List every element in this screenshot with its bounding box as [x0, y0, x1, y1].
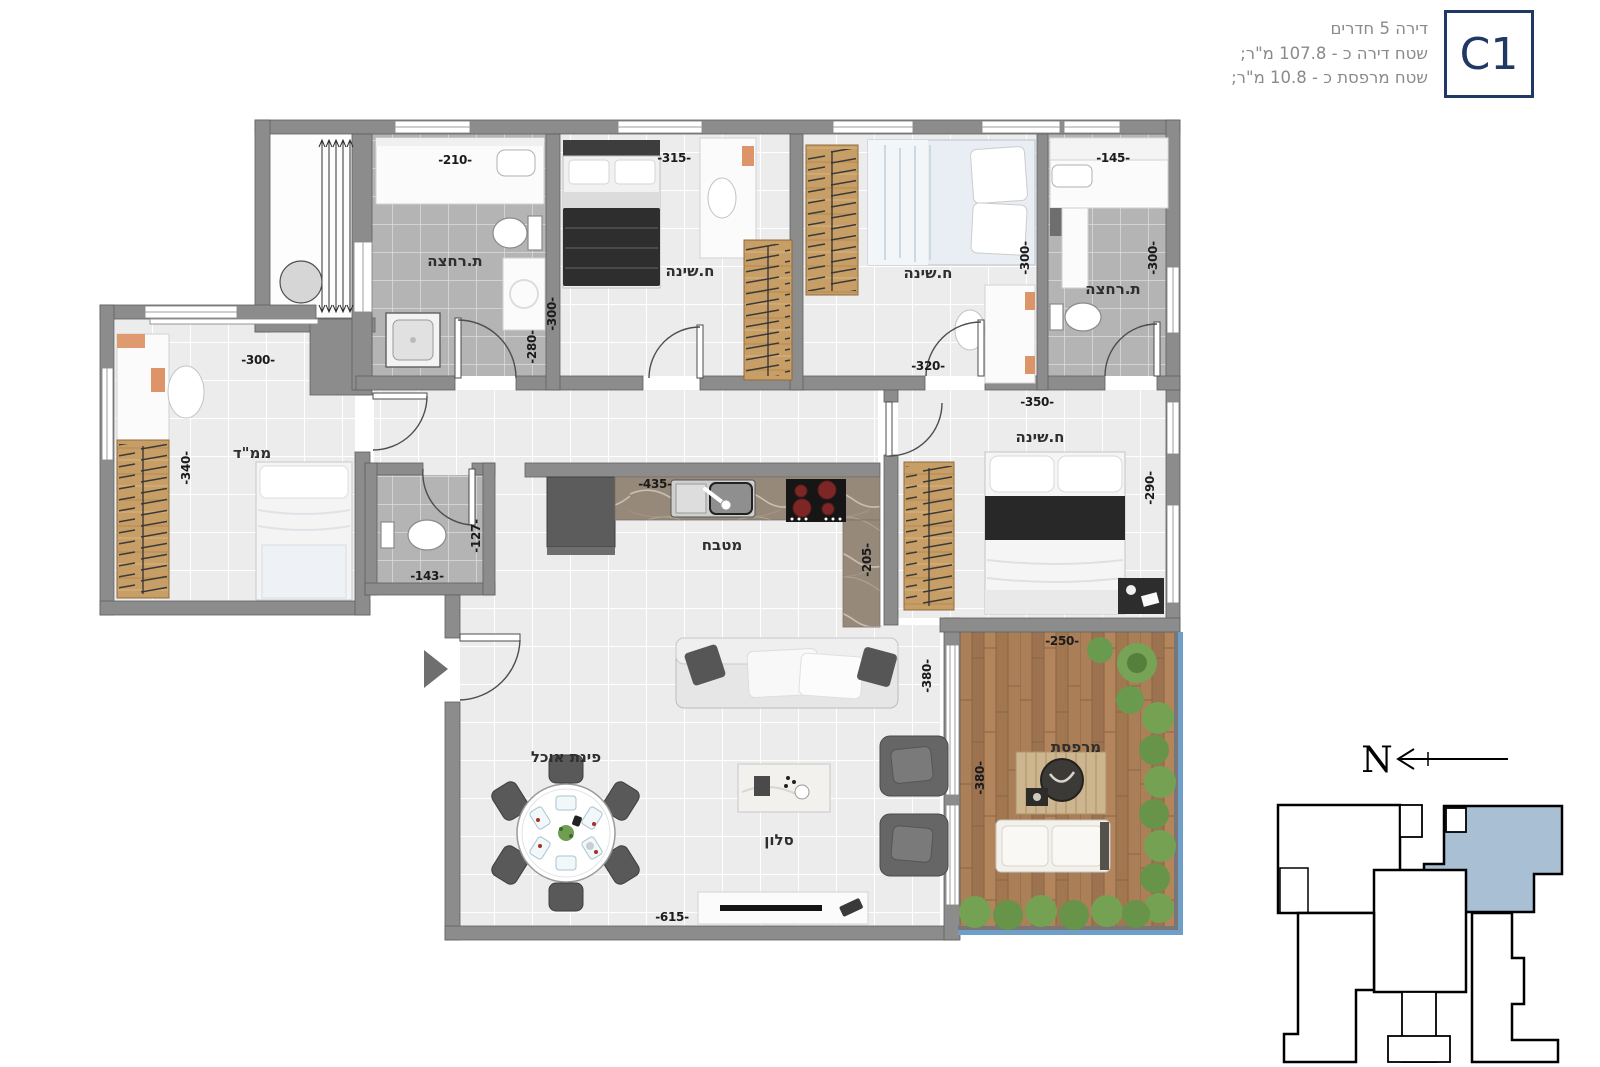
dim-safe-room-height: -340- [179, 451, 193, 485]
dim-safe-room-width: -300- [241, 353, 275, 367]
dim-bedroom-1-width: -315- [657, 151, 691, 165]
dim-bedroom-1-height: -300- [545, 297, 559, 331]
dim-bedroom-2-height: -300- [1018, 241, 1032, 275]
pillow [260, 466, 348, 498]
unit-code-badge: C1 [1444, 10, 1534, 98]
plan-header: דירה 5 חדרים שטח דירה כ - 107.8 מ"ר; שטח… [1231, 10, 1534, 98]
dim-wc-height: -127- [469, 519, 483, 553]
wc [381, 520, 446, 550]
north-arrow: N [1361, 740, 1508, 781]
lounge-sofa [996, 820, 1110, 872]
wardrobe-icon [744, 240, 792, 380]
blanket [262, 545, 346, 598]
key-plan [1278, 805, 1562, 1062]
room-label-living: סלון [764, 831, 794, 849]
dim-kitchen-width: -435- [638, 477, 672, 491]
tv-icon [720, 905, 822, 911]
dim-balcony-width: -250- [1045, 634, 1079, 648]
apartment-area-label: שטח דירה כ - 107.8 מ"ר; [1231, 42, 1428, 67]
bed-headboard [563, 140, 660, 156]
room-label-master: ח.שינה [1016, 428, 1065, 446]
fridge-icon [547, 477, 615, 547]
toilet-icon [1065, 303, 1101, 331]
dim-wc-width: -143- [410, 569, 444, 583]
apartment-info: דירה 5 חדרים שטח דירה כ - 107.8 מ"ר; שטח… [1231, 17, 1428, 91]
armchair [880, 814, 948, 876]
dim-bathroom-1-width: -210- [438, 153, 472, 167]
coffee-table [738, 764, 830, 812]
pillow [990, 456, 1054, 492]
room-label-dining: פינת אוכל [531, 748, 601, 766]
room-label-bedroom-1: ח.שינה [666, 262, 715, 280]
sofa [676, 638, 898, 708]
outdoor-rug [1016, 752, 1106, 814]
balcony-area-label: שטח מרפסת כ - 10.8 מ"ר; [1231, 66, 1428, 91]
room-label-safe-room: ממ"ד [233, 444, 271, 462]
unit-code: C1 [1460, 29, 1519, 80]
wardrobe-icon [117, 440, 169, 598]
dim-master-width: -350- [1020, 395, 1054, 409]
master-bedroom [904, 452, 1164, 614]
blanket [985, 496, 1125, 540]
room-label-bathroom-1: ת.רחצה [427, 252, 482, 270]
pillow [615, 160, 655, 184]
apartment-type-label: דירה 5 חדרים [1231, 17, 1428, 42]
dim-balcony-height: -380- [973, 761, 987, 795]
toilet-icon [408, 520, 446, 550]
room-label-bedroom-2: ח.שינה [904, 264, 953, 282]
sink-icon [671, 480, 755, 517]
tv-console [698, 892, 868, 924]
dim-bathroom-2-width: -145- [1096, 151, 1130, 165]
armchair [880, 736, 948, 796]
dim-bathroom-2-height: -300- [1146, 241, 1160, 275]
dim-bathroom-1-height: -280- [525, 330, 539, 364]
stove-icon [786, 479, 846, 522]
balcony-railing-blue [1178, 632, 1183, 935]
pillow [1058, 456, 1122, 492]
dim-kitchen-height: -205- [860, 543, 874, 577]
sink-basin [497, 150, 535, 176]
dim-master-height: -290- [1143, 471, 1157, 505]
basin [168, 366, 204, 418]
wardrobe-icon [806, 145, 858, 295]
sink-basin [1052, 165, 1092, 187]
floor-plan-page: ת.רחצה -210- -280- ח.שינה -315- -300- ח.… [0, 0, 1600, 1067]
dim-living-height: -380- [920, 659, 934, 693]
north-letter: N [1361, 740, 1393, 781]
room-label-bathroom-2: ת.רחצה [1085, 280, 1140, 298]
entrance-arrow-icon [424, 650, 448, 688]
dim-bedroom-2-width: -320- [911, 359, 945, 373]
pillow [569, 160, 609, 184]
balcony-railing-blue-bottom [958, 930, 1183, 935]
dim-living-width: -615- [655, 910, 689, 924]
boiler-icon [280, 261, 322, 303]
toilet-icon [493, 218, 527, 248]
pillow [970, 146, 1028, 204]
wardrobe-icon [904, 462, 954, 610]
room-label-kitchen: מטבח [702, 536, 743, 554]
desk-chair [708, 178, 736, 218]
floor-plan-drawing: ת.רחצה -210- -280- ח.שינה -315- -300- ח.… [0, 0, 1600, 1067]
room-label-balcony: מרפסת [1051, 738, 1101, 756]
